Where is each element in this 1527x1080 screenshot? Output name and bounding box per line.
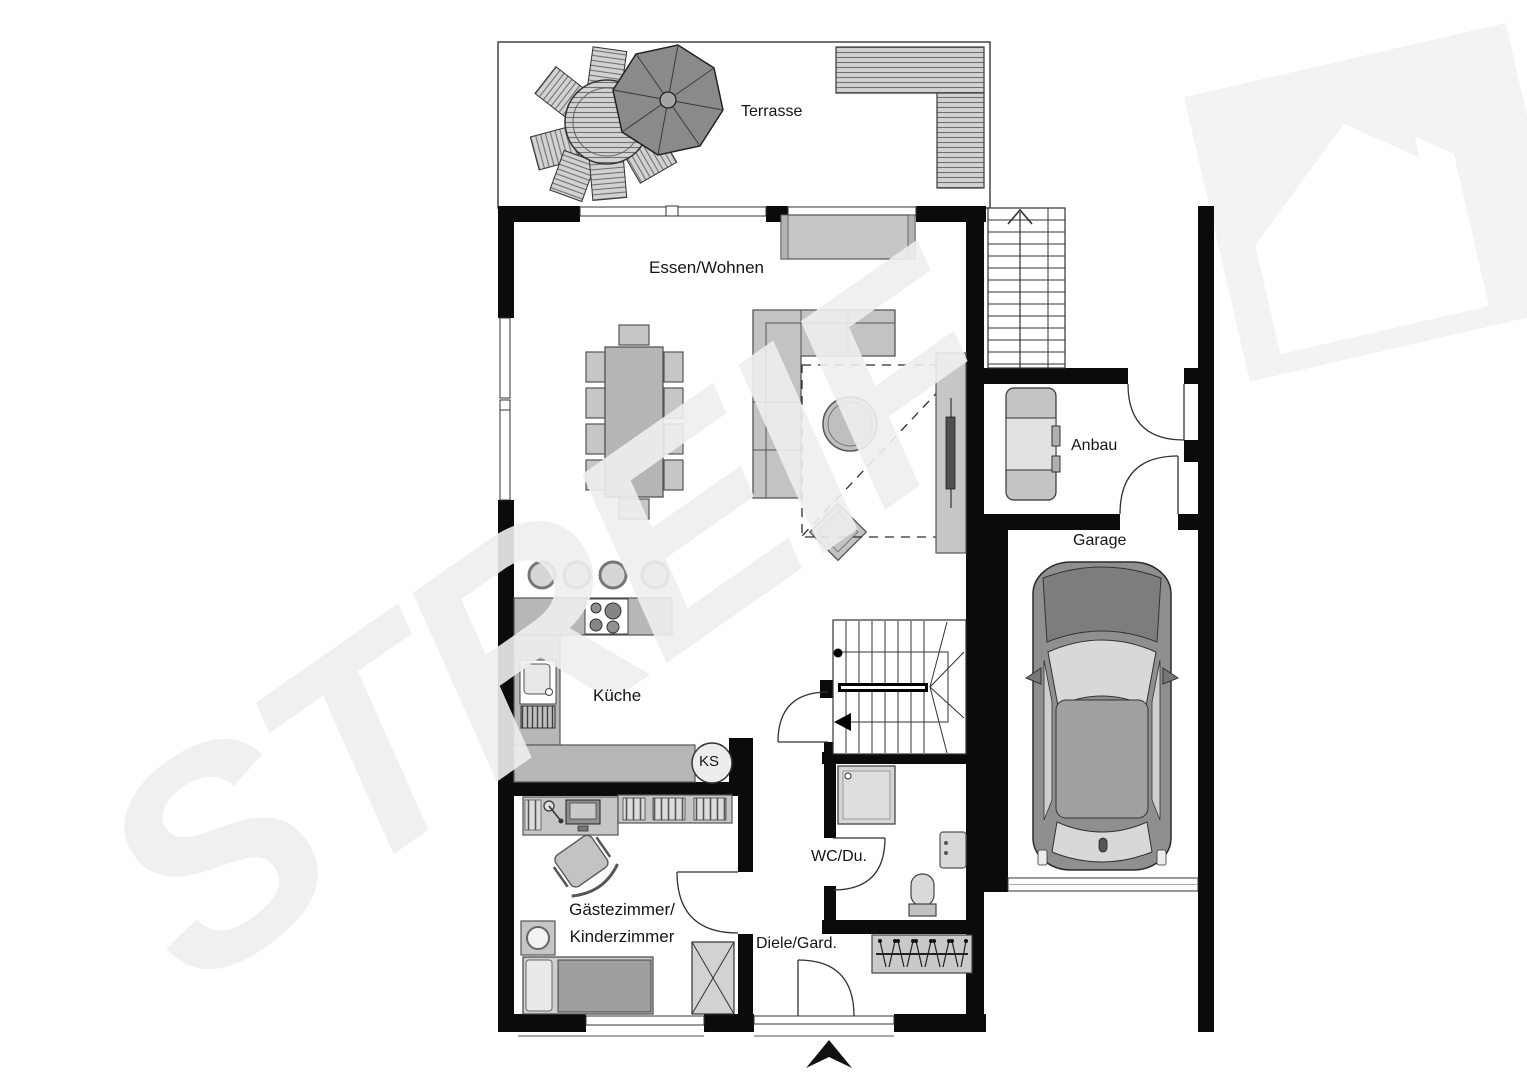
tv-board <box>936 353 966 553</box>
staircase-upper <box>988 208 1065 368</box>
dining-table-group <box>586 325 683 519</box>
door-entrance <box>798 960 854 1016</box>
label-essen-wohnen: Essen/Wohnen <box>649 258 764 278</box>
staircase-main <box>833 620 966 754</box>
label-terrasse: Terrasse <box>741 103 802 121</box>
cooktop <box>585 599 628 634</box>
toilet <box>909 874 936 916</box>
label-diele-gard: Diele/Gard. <box>756 935 837 953</box>
heating-unit <box>1006 388 1060 500</box>
terrace-area <box>498 42 990 208</box>
wardrobe <box>692 942 734 1014</box>
garage-door <box>1008 878 1198 891</box>
office-chair <box>548 830 623 903</box>
sofa <box>753 310 895 498</box>
coat-rack <box>872 935 972 973</box>
label-kueche: Küche <box>593 686 641 706</box>
armchair <box>810 504 867 561</box>
label-ks: KS <box>699 753 719 770</box>
stair-walkline-start-dot <box>834 649 843 658</box>
door-anbau-lower <box>1120 456 1178 514</box>
sideboard <box>781 215 915 259</box>
desk <box>523 797 618 835</box>
kitchen-sink <box>520 660 556 728</box>
label-garage: Garage <box>1073 532 1126 550</box>
bathroom-group <box>838 766 966 916</box>
kitchen-group <box>514 562 732 783</box>
bar-stools <box>529 562 668 588</box>
label-gaestezimmer-line2: Kinderzimmer <box>538 927 706 947</box>
entrance-arrow-icon <box>806 1040 852 1068</box>
bookshelf <box>618 795 732 823</box>
floor-plan-drawing <box>0 0 1527 1080</box>
label-wc-du: WC/Du. <box>811 848 867 866</box>
floor-plan: STREIF Terrasse Essen/Wohnen Anbau Garag… <box>0 0 1527 1080</box>
shower <box>838 766 895 824</box>
door-anbau-upper <box>1128 384 1184 440</box>
car <box>1026 562 1178 870</box>
washbasin <box>940 832 966 868</box>
label-anbau: Anbau <box>1071 437 1117 455</box>
streif-house-logo <box>1184 23 1527 382</box>
door-stair-base <box>778 692 828 742</box>
bed <box>523 957 653 1014</box>
label-gaestezimmer-line1: Gästezimmer/ <box>538 900 706 920</box>
coffee-table <box>823 397 877 451</box>
